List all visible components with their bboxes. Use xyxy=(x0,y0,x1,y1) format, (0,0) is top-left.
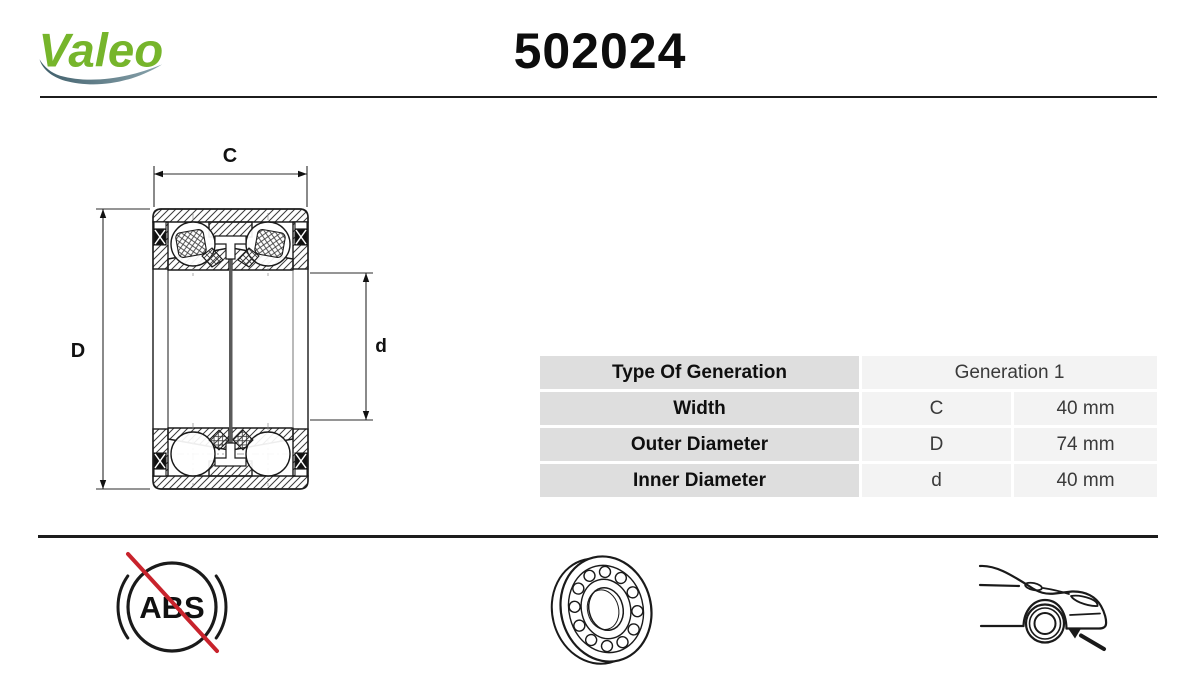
spec-label: Outer Diameter xyxy=(540,428,859,461)
dimension-width-C: C xyxy=(154,145,307,207)
dim-label-C: C xyxy=(223,145,237,167)
dimension-outer-D: D xyxy=(71,209,150,489)
car-front-wheel-icon xyxy=(963,553,1138,665)
no-abs-icon: ABS xyxy=(105,548,240,668)
footer-divider xyxy=(38,535,1158,538)
dim-label-D: D xyxy=(71,340,85,362)
spec-value: 40 mm xyxy=(1014,392,1157,425)
wheel-pointer-arrow xyxy=(1081,636,1104,650)
spec-table: Type Of Generation Generation 1 Width C … xyxy=(537,353,1160,500)
spec-value: 40 mm xyxy=(1014,464,1157,497)
abs-label: ABS xyxy=(139,590,204,625)
spec-label: Type Of Generation xyxy=(540,356,859,389)
abs-left-arc xyxy=(118,576,128,638)
part-number-title: 502024 xyxy=(0,22,1200,80)
car-wheel xyxy=(1026,605,1064,643)
table-row: Inner Diameter d 40 mm xyxy=(540,464,1157,497)
bearing-cross-section-diagram: C D d xyxy=(55,135,405,510)
table-row: Type Of Generation Generation 1 xyxy=(540,356,1157,389)
dimension-inner-d: d xyxy=(310,273,387,420)
spec-symbol: C xyxy=(862,392,1011,425)
bearing-3d-icon xyxy=(540,548,670,670)
car-mirror xyxy=(1024,581,1042,591)
spec-label: Width xyxy=(540,392,859,425)
abs-right-arc xyxy=(216,576,226,638)
spec-value: 74 mm xyxy=(1014,428,1157,461)
spec-symbol: d xyxy=(862,464,1011,497)
dim-label-d: d xyxy=(375,336,387,357)
table-row: Outer Diameter D 74 mm xyxy=(540,428,1157,461)
header-divider xyxy=(40,96,1157,98)
datasheet-page: Valeo 502024 xyxy=(0,0,1200,675)
spec-symbol: D xyxy=(862,428,1011,461)
table-row: Width C 40 mm xyxy=(540,392,1157,425)
spec-label: Inner Diameter xyxy=(540,464,859,497)
spec-value: Generation 1 xyxy=(862,356,1157,389)
